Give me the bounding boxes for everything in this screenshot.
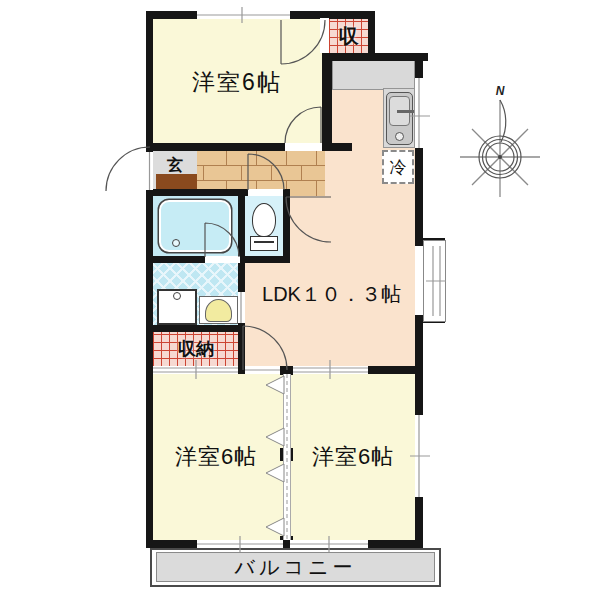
entrance-door-arc [106, 147, 150, 191]
room-label-ldk: LDK１０．３帖 [238, 281, 425, 307]
floor-plan: 冷 洋室6帖 収 玄 LDK１０．３帖 収納 洋室6帖 洋室6帖 バルコニー [0, 0, 600, 600]
toilet-tank-line [254, 241, 274, 243]
hallway-brick-row [197, 151, 325, 166]
bathtub-drain [172, 239, 180, 247]
kitchen-counter-top [332, 57, 415, 90]
kitchen-sink-drain [395, 132, 404, 141]
room-label-entrance: 玄 [153, 154, 197, 176]
wall-segment [238, 189, 245, 263]
wall-segment [322, 53, 428, 61]
hallway-brick-row [197, 166, 325, 181]
room-label-storage: 収納 [150, 336, 242, 362]
partition-track [283, 374, 291, 540]
compass-icon: N [460, 84, 540, 197]
toilet-bowl-icon [252, 203, 276, 237]
wall-segment [146, 325, 245, 332]
balcony-label: バルコニー [150, 551, 441, 583]
window [415, 78, 423, 148]
window [197, 540, 283, 548]
compass-north-label: N [496, 84, 505, 98]
wall-segment [283, 189, 290, 263]
compass-north-flag [500, 100, 506, 142]
room-label-bedroom-bottom-left: 洋室6帖 [148, 440, 284, 474]
window [290, 540, 368, 548]
door-opening [245, 366, 280, 374]
room-label-bedroom-bottom-right: 洋室6帖 [292, 440, 414, 474]
door-opening [205, 256, 240, 263]
kitchen-faucet [397, 110, 414, 113]
wall-segment [322, 53, 332, 151]
door-opening [248, 189, 283, 196]
window [415, 415, 423, 497]
sliding-door-opening [153, 366, 238, 374]
refrigerator-label: 冷 [390, 156, 407, 179]
toilet-tank-icon [250, 236, 278, 251]
wall-segment [368, 366, 415, 374]
wash-basin-icon [205, 299, 232, 322]
room-label-bedroom-top: 洋室6帖 [157, 64, 317, 100]
entrance-door-opening [146, 152, 153, 190]
bay-window [423, 240, 446, 322]
door-opening [285, 143, 322, 151]
bathtub-icon [159, 200, 231, 252]
window [197, 11, 290, 19]
sliding-door-opening [293, 366, 368, 374]
closet-door-frame [320, 18, 329, 53]
refrigerator-box: 冷 [382, 150, 414, 184]
washer-faucet [173, 292, 181, 300]
room-label-closet: 収 [329, 21, 368, 52]
